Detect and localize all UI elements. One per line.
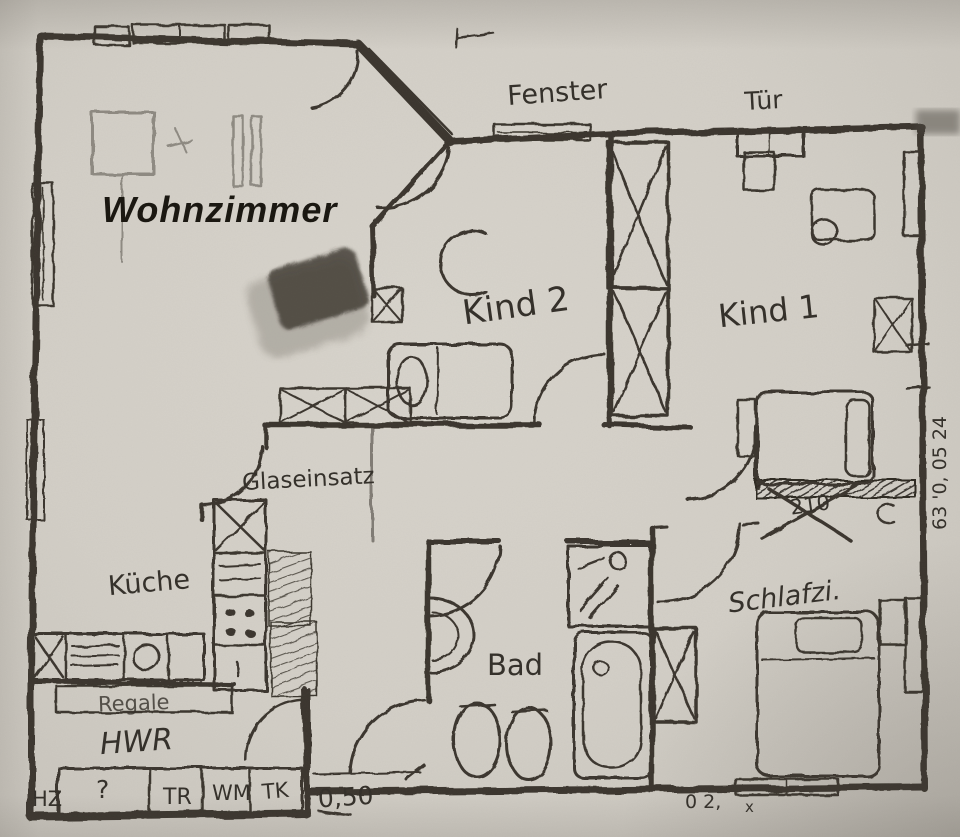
floor-plan-photo: Wohnzimmer Fenster Tür Kind 2 Kind 1 Gla… — [0, 0, 960, 837]
floor-plan-sketch: Wohnzimmer Fenster Tür Kind 2 Kind 1 Gla… — [0, 0, 960, 837]
paper-grain — [0, 0, 960, 837]
